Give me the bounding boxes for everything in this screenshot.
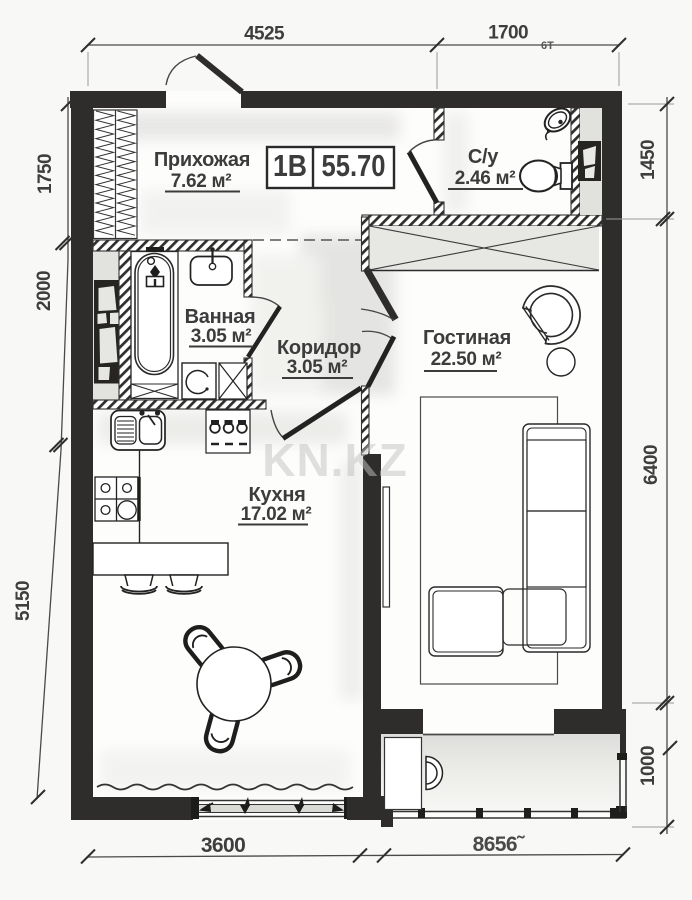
- svg-text:KN.KZ: KN.KZ: [262, 434, 408, 486]
- svg-text:3600: 3600: [201, 834, 245, 857]
- svg-text:17.02 м²: 17.02 м²: [241, 504, 312, 525]
- svg-text:5150: 5150: [13, 581, 34, 621]
- svg-text:4525: 4525: [244, 24, 285, 45]
- svg-text:С/у: С/у: [468, 146, 499, 168]
- svg-text:1В: 1В: [273, 148, 307, 183]
- svg-text:1700: 1700: [488, 23, 528, 44]
- svg-text:Кухня: Кухня: [249, 484, 306, 506]
- svg-text:7.62 м²: 7.62 м²: [171, 171, 232, 192]
- svg-text:Коридор: Коридор: [277, 337, 361, 359]
- svg-text:2.46 м²: 2.46 м²: [455, 168, 516, 189]
- svg-text:Ванная: Ванная: [185, 306, 256, 328]
- svg-text:Прихожая: Прихожая: [154, 149, 250, 171]
- svg-text:3.05 м²: 3.05 м²: [287, 357, 348, 378]
- svg-text:6T: 6T: [541, 40, 554, 52]
- svg-text:8656˜: 8656˜: [473, 833, 525, 856]
- svg-text:Гостиная: Гостиная: [423, 327, 511, 349]
- svg-text:1750: 1750: [35, 154, 56, 194]
- svg-text:55.70: 55.70: [322, 148, 386, 183]
- svg-text:1000: 1000: [638, 746, 659, 786]
- svg-text:22.50 м²: 22.50 м²: [431, 349, 502, 370]
- svg-text:2000: 2000: [34, 271, 55, 311]
- svg-text:6400: 6400: [641, 445, 662, 485]
- svg-text:3.05 м²: 3.05 м²: [191, 326, 252, 347]
- svg-text:1450: 1450: [638, 140, 659, 180]
